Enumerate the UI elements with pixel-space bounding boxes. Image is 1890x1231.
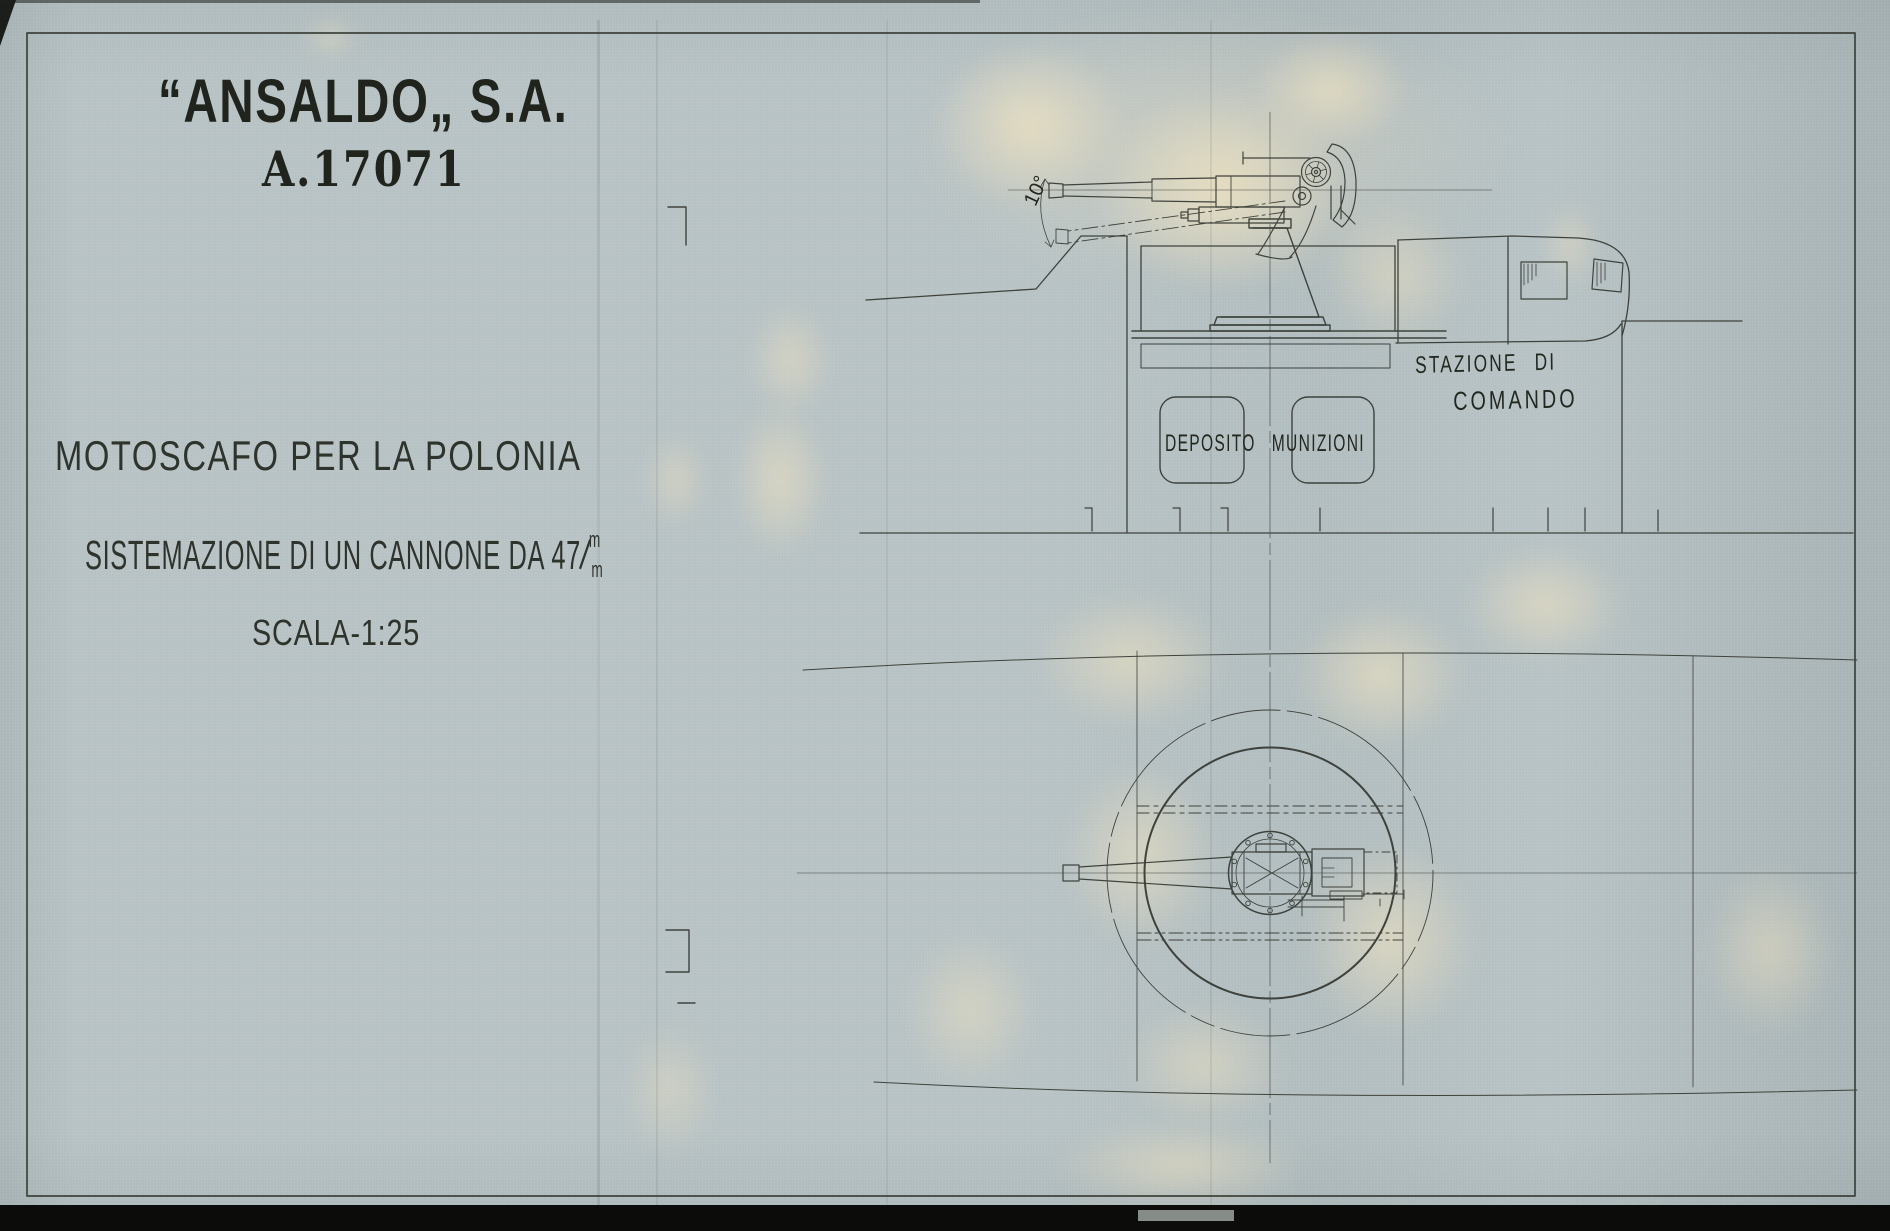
register-marks bbox=[666, 207, 695, 1003]
plan-deck-lines bbox=[797, 651, 1857, 1095]
gun-side-view bbox=[1008, 144, 1492, 259]
deck-profile bbox=[860, 236, 1853, 533]
station-label-line2: COMANDO bbox=[1453, 383, 1578, 417]
scan-bottom-notch bbox=[1138, 1210, 1234, 1221]
caliber-fraction: m/m bbox=[581, 539, 602, 579]
drawing-subtitle: SISTEMAZIONE DI UN CANNONE DA 47m/m bbox=[85, 532, 602, 579]
frame-ticks bbox=[1085, 508, 1658, 531]
drawing-scale: SCALA-1:25 bbox=[252, 612, 420, 654]
drawing-number: A.17071 bbox=[262, 140, 466, 198]
blueprint-sheet: “ANSALDO„ S.A. A.17071 MOTOSCAFO PER LA … bbox=[0, 0, 1890, 1231]
subtitle-text: SISTEMAZIONE DI UN CANNONE DA 47 bbox=[85, 532, 581, 578]
station-label-line1: STAZIONE DI bbox=[1415, 349, 1556, 380]
scan-bottom-band bbox=[0, 1205, 1890, 1231]
company-title: “ANSALDO„ S.A. bbox=[158, 66, 568, 136]
scan-top-edge bbox=[0, 0, 980, 3]
drawing-title: MOTOSCAFO PER LA POLONIA bbox=[55, 432, 582, 480]
ammo-depot-label: DEPOSITO MUNIZIONI bbox=[1165, 430, 1365, 458]
